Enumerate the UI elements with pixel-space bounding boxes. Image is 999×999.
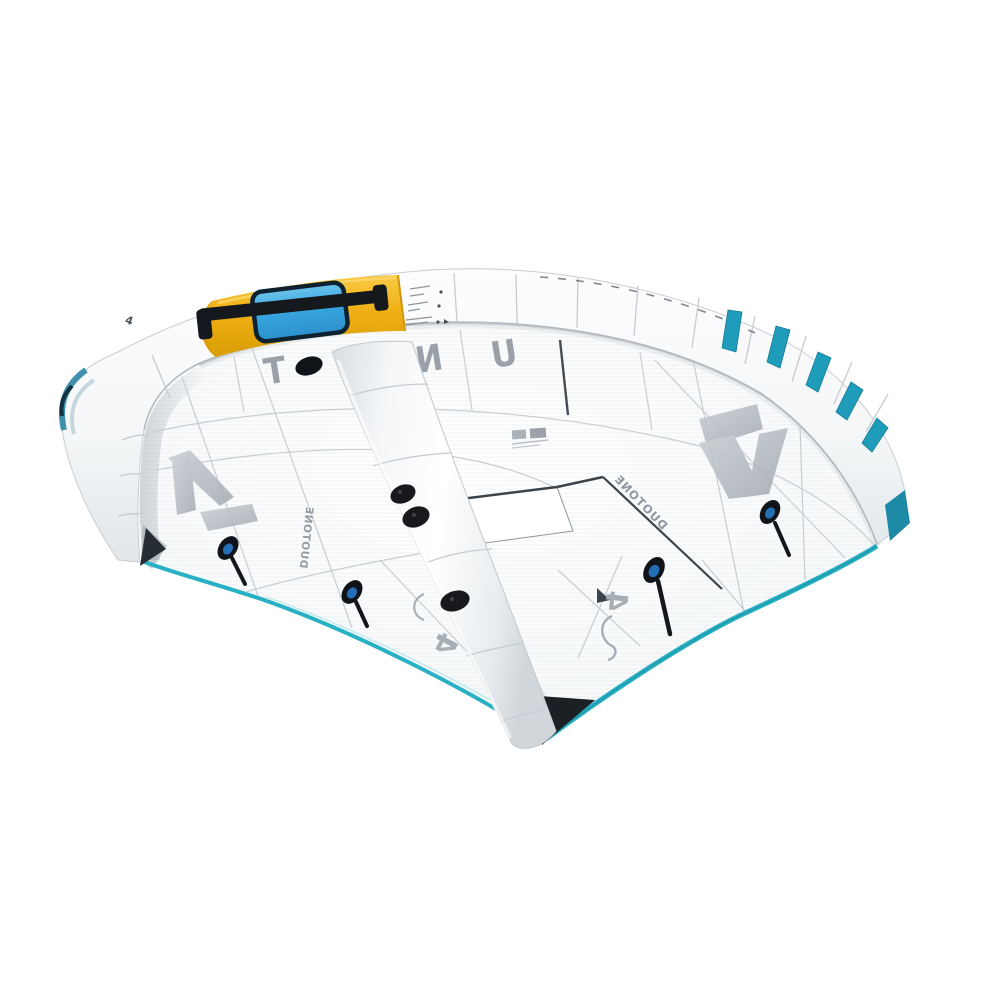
- wing-illustration: T N U DUOTONE DUOTONE 4 4: [0, 0, 999, 999]
- product-photo: T N U DUOTONE DUOTONE 4 4: [0, 0, 999, 999]
- size-label-right: 4: [597, 589, 634, 613]
- size-label-leading-edge: 4: [123, 313, 135, 328]
